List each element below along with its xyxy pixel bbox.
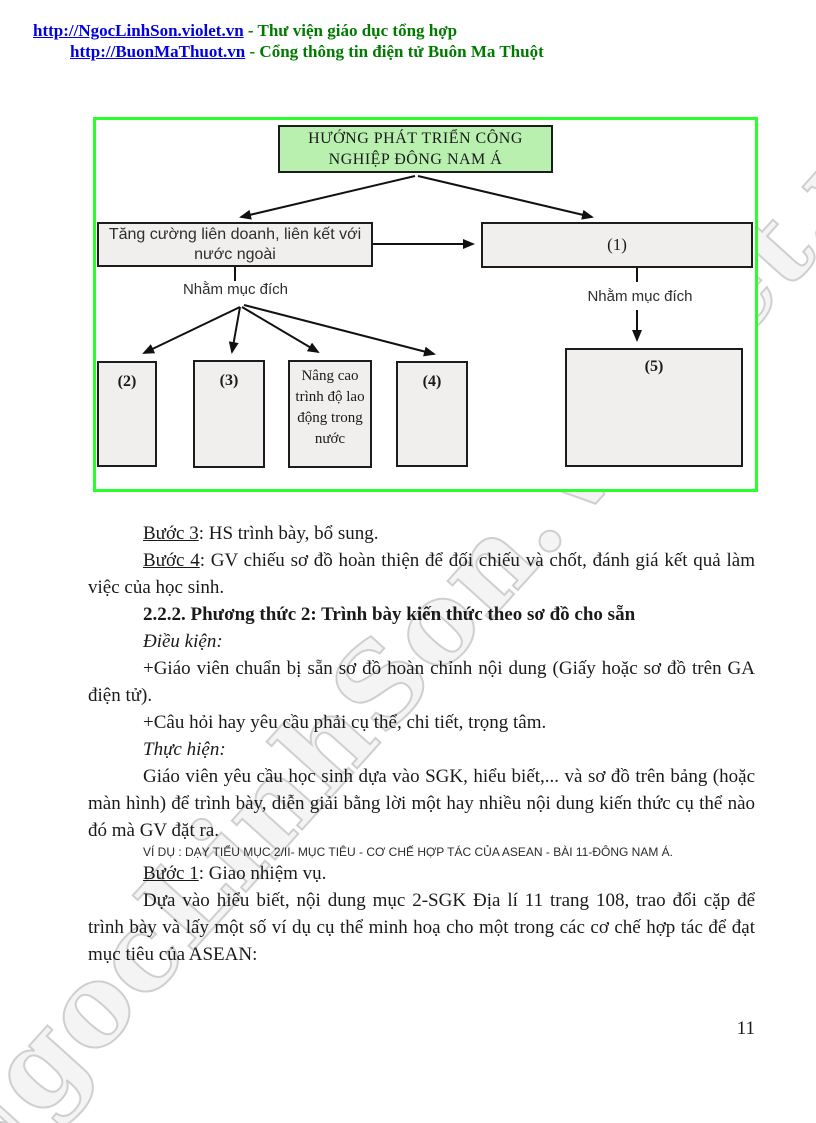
- paragraph-buoc-4: Bước 4: GV chiếu sơ đồ hoàn thiện để đối…: [88, 547, 755, 601]
- buoc-3-label: Bước 3: [143, 523, 199, 544]
- buoc-3-text: : HS trình bày, bổ sung.: [199, 523, 379, 544]
- buoc-4-label: Bước 4: [143, 550, 200, 571]
- label-nham-muc-dich-left: Nhằm mục đích: [178, 281, 293, 298]
- paragraph-vi-du: VÍ DỤ : DẠY TIỂU MỤC 2/II- MỤC TIÊU - CƠ…: [88, 844, 755, 860]
- paragraph-dua-vao-hieu-biet: Dựa vào hiểu biết, nội dung mục 2-SGK Đị…: [88, 887, 755, 968]
- buoc-1-text: : Giao nhiệm vụ.: [199, 863, 327, 884]
- section-heading-2-2-2: 2.2.2. Phương thức 2: Trình bày kiến thứ…: [88, 601, 755, 628]
- header-line-1: http://NgocLinhSon.violet.vn - Thư viện …: [33, 20, 544, 41]
- paragraph-dieu-kien: Điều kiện:: [88, 628, 755, 655]
- document-page: NgocLinhSon.Violet.vn http://NgocLinhSon…: [0, 0, 816, 1123]
- buoc-1-label: Bước 1: [143, 863, 199, 884]
- paragraph-buoc-3: Bước 3: HS trình bày, bổ sung.: [88, 520, 755, 547]
- diagram-box-5: (5): [565, 348, 743, 467]
- header-line-2-text: - Cổng thông tin điện tử Buôn Ma Thuột: [245, 42, 544, 61]
- header-line-1-text: - Thư viện giáo dục tổng hợp: [244, 21, 457, 40]
- header-link-buonmathuot[interactable]: http://BuonMaThuot.vn: [70, 42, 245, 61]
- header-line-2: http://BuonMaThuot.vn - Cổng thông tin đ…: [70, 41, 544, 62]
- paragraph-buoc-1: Bước 1: Giao nhiệm vụ.: [88, 860, 755, 887]
- diagram-box-1: (1): [481, 222, 753, 268]
- body-text: Bước 3: HS trình bày, bổ sung. Bước 4: G…: [88, 520, 755, 968]
- paragraph-cau-hoi: +Câu hỏi hay yêu cầu phải cụ thể, chi ti…: [88, 709, 755, 736]
- page-header: http://NgocLinhSon.violet.vn - Thư viện …: [33, 20, 544, 62]
- paragraph-thuc-hien: Thực hiện:: [88, 736, 755, 763]
- diagram-box-lien-doanh: Tăng cường liên doanh, liên kết với nước…: [97, 222, 373, 267]
- paragraph-giao-vien-chuan-bi: +Giáo viên chuẩn bị sẵn sơ đồ hoàn chỉnh…: [88, 655, 755, 709]
- diagram-box-nang-cao: Nâng cao trình độ lao động trong nước: [288, 360, 372, 468]
- diagram-title-box: HƯỚNG PHÁT TRIỂN CÔNG NGHIỆP ĐÔNG NAM Á: [278, 125, 553, 173]
- diagram-box-4: (4): [396, 361, 468, 467]
- diagram-box-3: (3): [193, 360, 265, 468]
- label-nham-muc-dich-right: Nhằm mục đích: [580, 288, 700, 305]
- paragraph-giao-vien-yeu-cau: Giáo viên yêu cầu học sinh dựa vào SGK, …: [88, 763, 755, 844]
- diagram-box-2: (2): [97, 361, 157, 467]
- industry-development-diagram: HƯỚNG PHÁT TRIỂN CÔNG NGHIỆP ĐÔNG NAM Á …: [93, 117, 758, 492]
- page-number: 11: [700, 1018, 755, 1040]
- header-link-ngoclinhson[interactable]: http://NgocLinhSon.violet.vn: [33, 21, 244, 40]
